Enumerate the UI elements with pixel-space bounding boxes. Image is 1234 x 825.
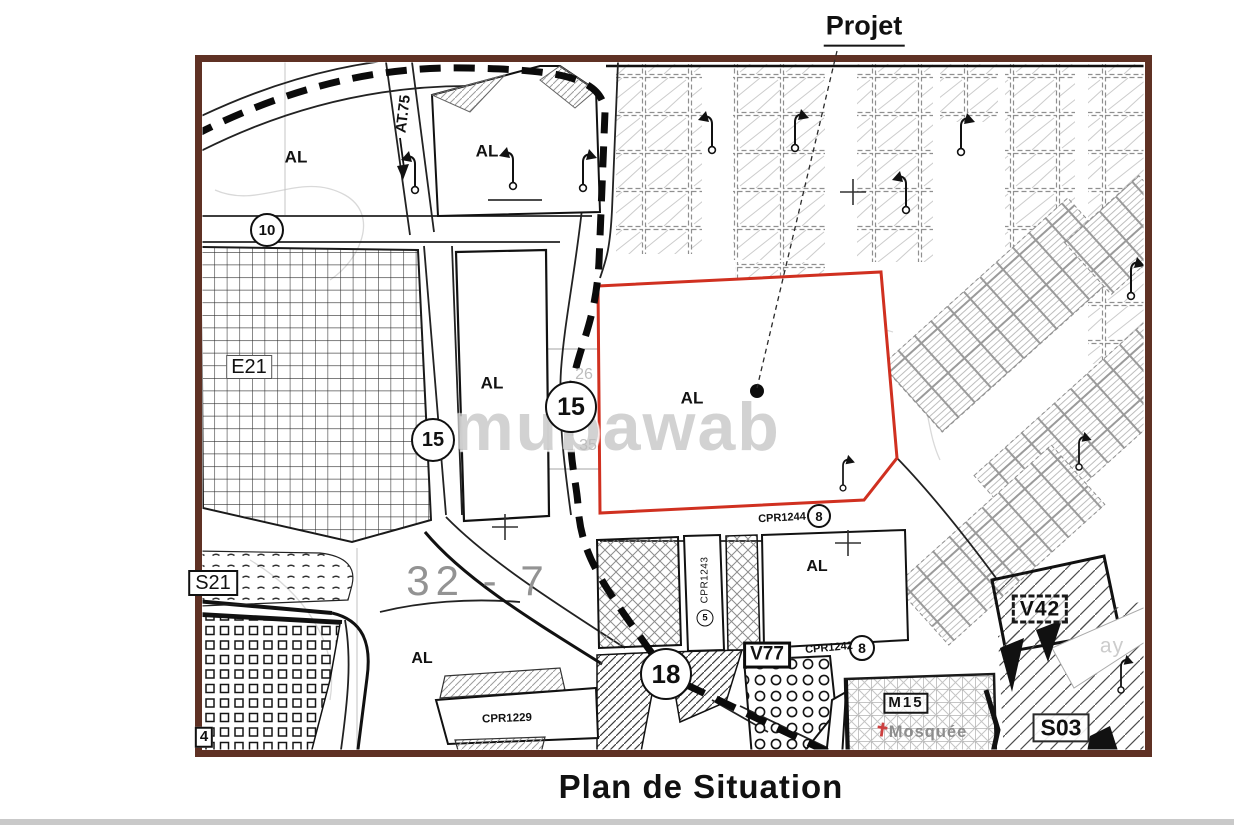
sector-label-32-7: 32 - 7 [406,558,549,604]
project-title: Projet [824,12,905,47]
plan-caption: Plan de Situation [559,769,844,805]
road-marker-18: 18 [640,648,692,700]
parcel-ref-cpr1243: CPR1243 [700,557,711,604]
zone-label-al: AL [411,650,432,668]
faint-number-26: 26 [575,366,593,384]
parcel-ref-cpr1229: CPR1229 [482,712,532,726]
road-marker-15: 15 [545,381,597,433]
parcel-ref-cpr1244: CPR1244 [758,511,806,526]
zone-label-al: AL [806,558,827,576]
zone-label-al: AL [681,390,704,409]
parcels-south [597,530,908,651]
parcel-top-middle [268,0,600,216]
zone-label-al: AL [476,143,499,162]
road-marker-15: 15 [411,418,455,462]
zone-label-al: AL [481,375,504,394]
box-label-v77: V77 [743,642,791,669]
zone-label-4: 4 [195,727,213,748]
watermark-text: mubawab [453,388,781,466]
box-label-m15: M15 [883,693,928,714]
road-marker-8: 8 [807,504,831,528]
poi-label-mosque: Mosquée [889,723,968,741]
faint-number-35: 35 [579,437,597,455]
map-content [193,0,1206,757]
road-marker-10: 10 [250,213,284,247]
site-plan-page: mubawab Projet Plan de Situation AL AL A… [0,0,1234,825]
road-marker-5: 5 [697,610,714,627]
zone-label-e21: E21 [226,355,272,379]
bottom-divider [0,819,1234,825]
zone-squares [197,616,340,757]
zone-label-s21: S21 [188,570,238,596]
zone-e21 [201,247,431,542]
zone-label-al: AL [285,149,308,168]
box-label-v42: V42 [1012,594,1068,623]
faint-street-label-ay: ay [1100,634,1124,657]
box-label-s03: S03 [1033,713,1090,742]
